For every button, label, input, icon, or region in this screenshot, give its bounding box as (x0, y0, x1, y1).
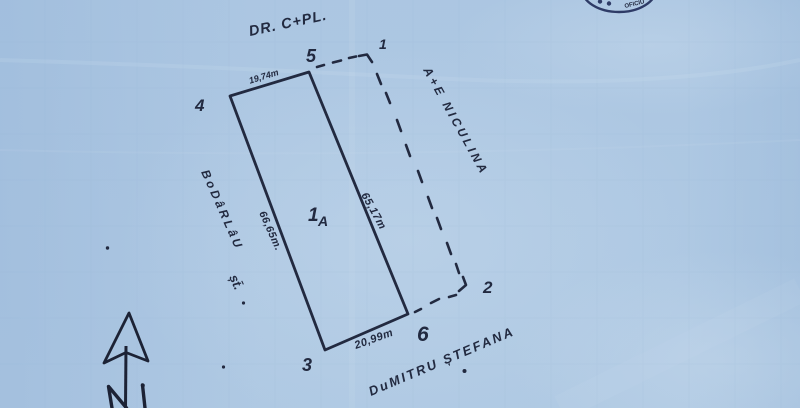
svg-text:5: 5 (306, 46, 317, 66)
svg-text:6: 6 (417, 323, 429, 346)
svg-text:1: 1 (308, 205, 319, 226)
svg-text:2: 2 (482, 278, 493, 297)
svg-text:3: 3 (302, 355, 312, 375)
svg-text:1: 1 (379, 36, 387, 52)
svg-text:A: A (317, 213, 328, 229)
svg-text:4: 4 (194, 96, 205, 115)
